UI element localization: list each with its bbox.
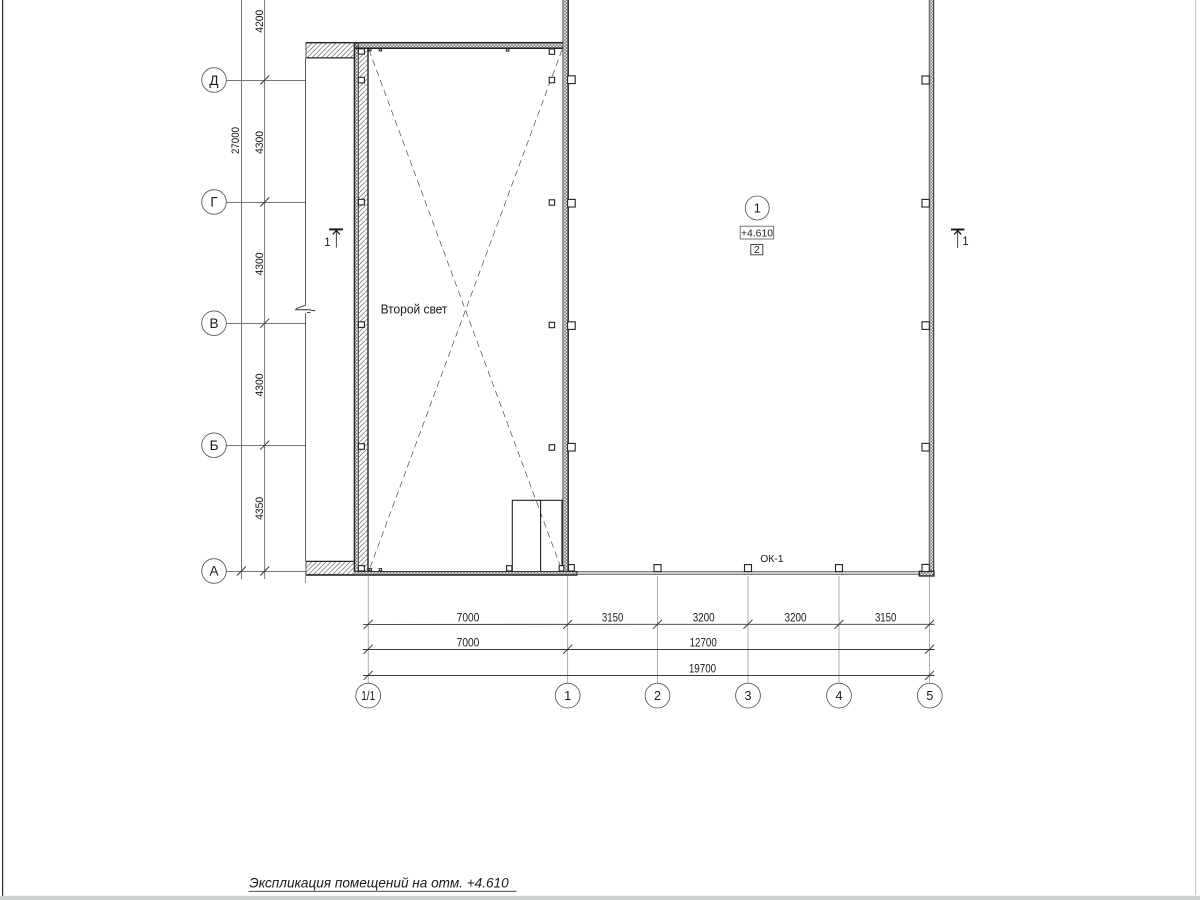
svg-text:4350: 4350 [254, 497, 266, 520]
svg-text:4: 4 [836, 689, 843, 703]
svg-text:2: 2 [754, 244, 760, 256]
svg-text:Г: Г [210, 195, 218, 210]
svg-text:Второй свет: Второй свет [381, 301, 448, 316]
svg-text:4300: 4300 [254, 253, 266, 276]
svg-text:1: 1 [324, 237, 330, 249]
svg-text:4200: 4200 [254, 10, 266, 33]
svg-text:3200: 3200 [785, 613, 807, 625]
svg-text:3200: 3200 [693, 613, 715, 625]
svg-text:4300: 4300 [254, 131, 266, 154]
svg-text:Б: Б [210, 438, 219, 453]
svg-text:1: 1 [962, 236, 968, 248]
svg-text:+4.610: +4.610 [741, 228, 773, 239]
svg-text:7000: 7000 [457, 638, 480, 650]
svg-text:12700: 12700 [690, 638, 717, 650]
svg-text:4300: 4300 [254, 374, 266, 397]
svg-text:А: А [209, 564, 218, 579]
svg-text:19700: 19700 [689, 664, 716, 676]
svg-text:Д: Д [209, 73, 218, 88]
svg-text:5: 5 [926, 689, 933, 703]
svg-text:В: В [209, 316, 218, 331]
svg-text:3: 3 [745, 689, 752, 703]
svg-text:7000: 7000 [457, 613, 480, 625]
svg-text:ОК-1: ОК-1 [760, 554, 784, 565]
svg-text:2: 2 [654, 689, 661, 703]
svg-text:1/1: 1/1 [361, 689, 375, 703]
svg-text:Экспликация помещений на отм.: Экспликация помещений на отм. +4.610 [249, 875, 509, 890]
svg-text:3150: 3150 [602, 613, 624, 625]
svg-text:27000: 27000 [230, 127, 242, 154]
svg-text:1: 1 [754, 201, 761, 216]
svg-text:3150: 3150 [875, 613, 897, 625]
svg-text:1: 1 [564, 689, 571, 703]
